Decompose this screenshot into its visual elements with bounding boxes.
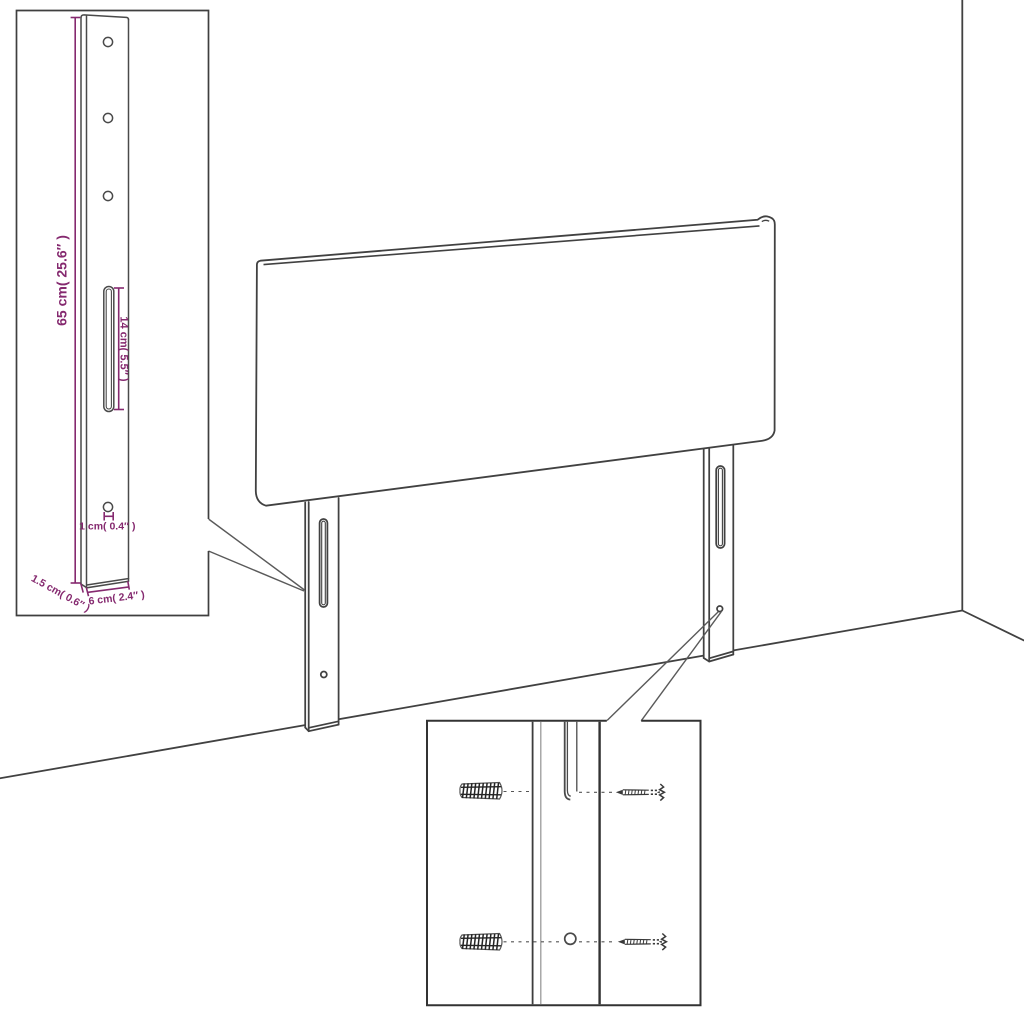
svg-text:1 cm( 0.4″ ): 1 cm( 0.4″ ) xyxy=(79,520,135,532)
svg-text:14 cm( 5.5″ ): 14 cm( 5.5″ ) xyxy=(117,316,129,382)
svg-text:65 cm( 25.6″ ): 65 cm( 25.6″ ) xyxy=(54,235,70,326)
